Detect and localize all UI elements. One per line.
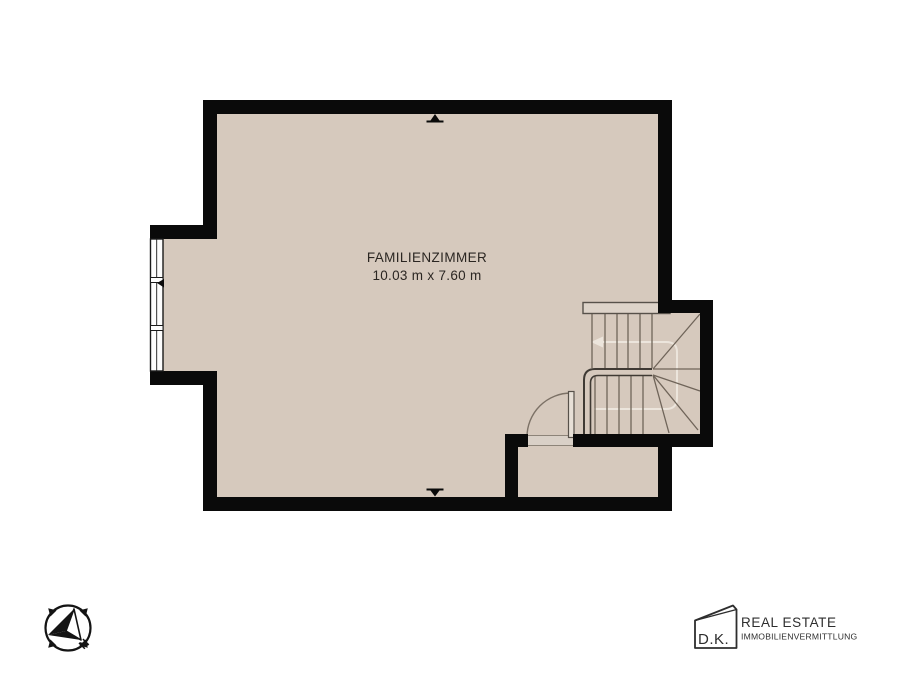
- tick-down-bar: [427, 489, 444, 491]
- stair-top-step: [583, 303, 670, 314]
- tick-right-bar: [669, 290, 671, 303]
- wall-window-bay-top: [150, 225, 217, 239]
- room-name: FAMILIENZIMMER: [367, 250, 487, 265]
- wall-stair-bay-right: [700, 300, 713, 447]
- wall-right-upper: [658, 100, 672, 313]
- window: [151, 239, 164, 371]
- window-recess-floor: [163, 239, 217, 371]
- floorplan-canvas: FAMILIENZIMMER 10.03 m x 7.60 m N D.K. R…: [0, 0, 900, 675]
- wall-bottom: [203, 497, 672, 511]
- door-sill: [528, 436, 574, 446]
- wall-small-room-left: [505, 434, 518, 511]
- north-label: N: [76, 636, 92, 652]
- wall-left-lower: [203, 371, 217, 511]
- window-mullion: [151, 326, 164, 331]
- company-subtitle: IMMOBILIENVERMITTLUNG: [741, 632, 858, 642]
- wall-small-room-right: [658, 434, 672, 511]
- floorplan-page: FAMILIENZIMMER 10.03 m x 7.60 m N D.K. R…: [0, 0, 900, 675]
- wall-top: [203, 100, 672, 114]
- compass-rose: N: [45, 605, 92, 652]
- door-leaf: [569, 392, 575, 438]
- wall-left-upper: [203, 100, 217, 239]
- wall-stair-bay-bottom: [573, 434, 713, 447]
- room-dimensions: 10.03 m x 7.60 m: [372, 268, 481, 283]
- tick-up-bar: [427, 121, 444, 123]
- logo-monogram: D.K.: [698, 631, 729, 648]
- company-name: REAL ESTATE: [741, 615, 837, 630]
- brand-logo: D.K. REAL ESTATE IMMOBILIENVERMITTLUNG: [695, 606, 858, 649]
